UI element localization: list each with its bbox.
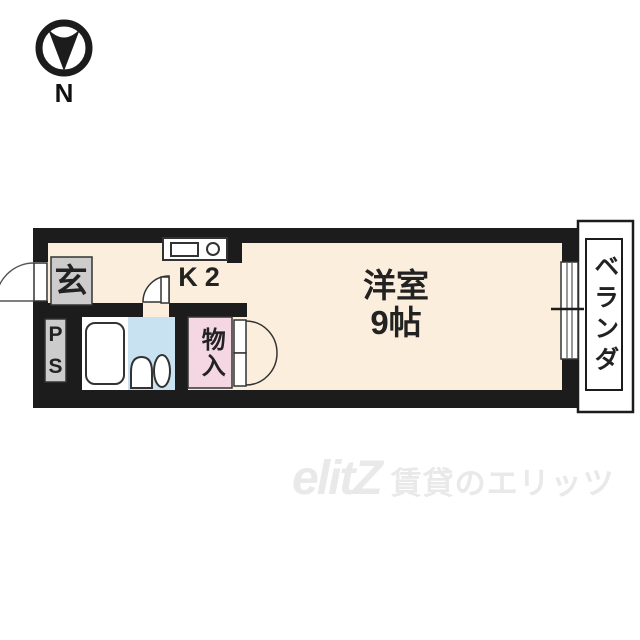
toilet-icon — [131, 357, 152, 388]
kitchen-counter-icon — [163, 238, 227, 260]
floor-plan-drawing — [0, 0, 640, 640]
pipe-space-label-s: S — [48, 356, 62, 377]
kitchen-label: K2 — [164, 263, 234, 293]
western-room-size: 9帖 — [370, 304, 421, 341]
pipe-space-label: P S — [45, 319, 66, 382]
north-compass-icon — [39, 23, 89, 73]
watermark-text: 賃貸のエリッツ — [391, 458, 615, 503]
floor-plan-page: N 玄 P S K2 洋室 9帖 物入 ベランダ elitZ 賃貸のエリッツ — [0, 0, 640, 640]
western-room-label: 洋室 9帖 — [336, 266, 456, 342]
sink-icon — [154, 355, 170, 387]
entrance-door — [0, 262, 48, 301]
storage-label: 物入 — [188, 320, 232, 385]
bathtub-icon — [86, 323, 124, 384]
veranda-label: ベランダ — [586, 242, 622, 388]
bathroom-area — [82, 317, 175, 390]
compass-north-label: N — [48, 79, 80, 107]
western-room-name: 洋室 — [363, 267, 429, 304]
watermark-logo: elitZ — [292, 451, 381, 506]
genkan-label: 玄 — [50, 259, 92, 304]
pipe-space-label-p: P — [48, 324, 62, 345]
watermark: elitZ 賃貸のエリッツ — [292, 451, 615, 506]
